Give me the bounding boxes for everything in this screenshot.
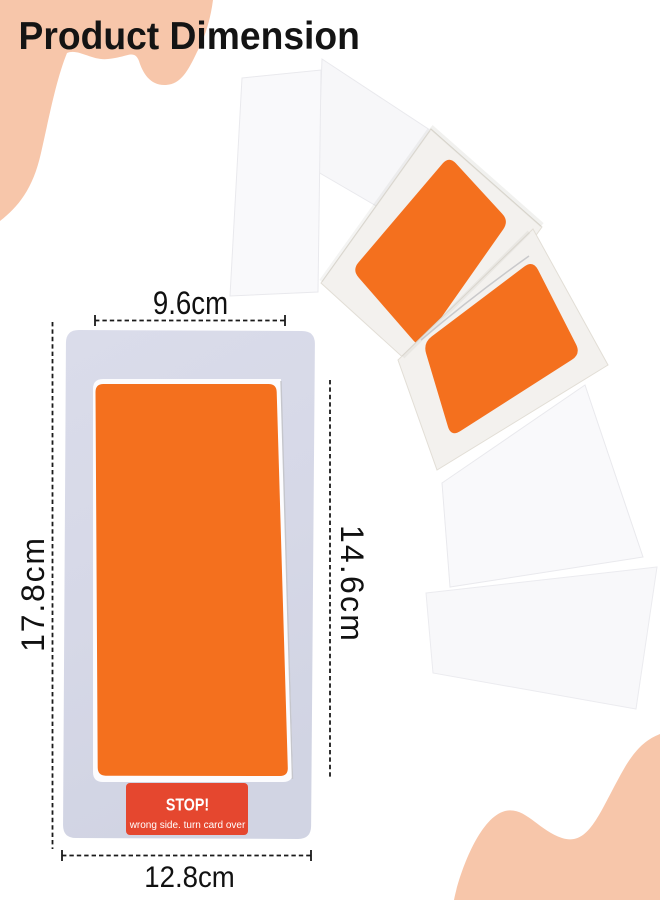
svg-text:12.8cm: 12.8cm — [144, 861, 234, 894]
svg-text:14.6cm: 14.6cm — [334, 525, 370, 643]
svg-text:9.6cm: 9.6cm — [153, 286, 228, 322]
svg-text:STOP!: STOP! — [166, 795, 209, 815]
svg-text:Product Dimension: Product Dimension — [19, 14, 360, 58]
svg-text:17.8cm: 17.8cm — [15, 536, 51, 652]
svg-text:wrong side. turn card over: wrong side. turn card over — [129, 820, 246, 831]
